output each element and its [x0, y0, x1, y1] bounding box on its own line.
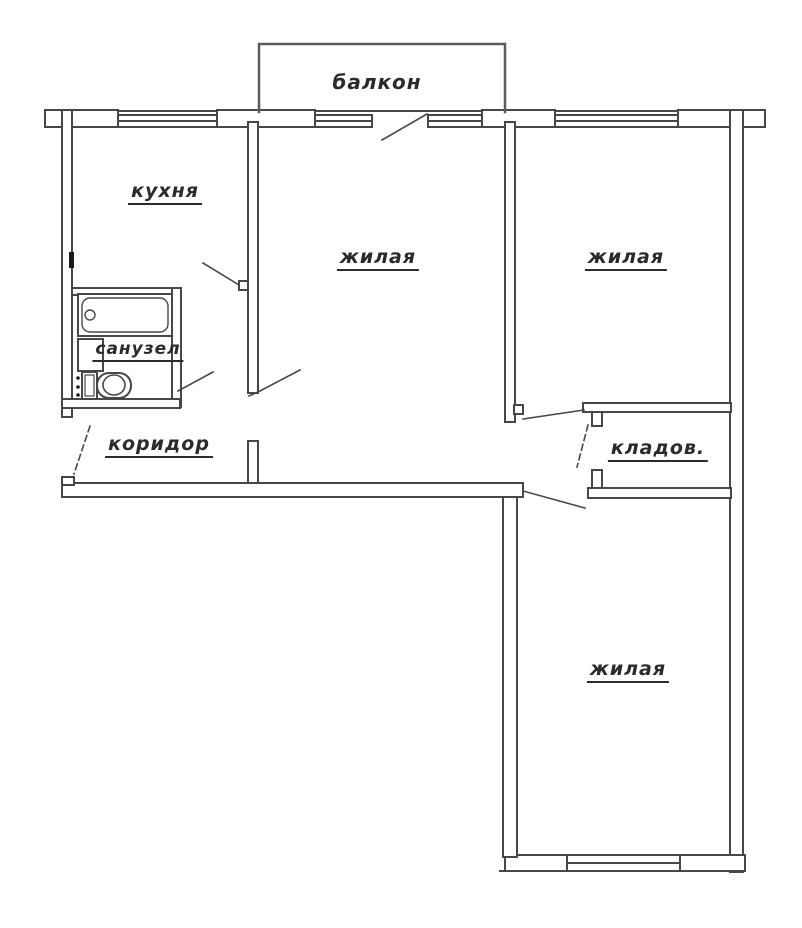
room-label-living-bottom: жилая	[587, 658, 669, 683]
entrance-door-swing	[74, 426, 90, 474]
kitchen-door-swing	[203, 263, 239, 285]
wall-top-pier-right	[678, 110, 765, 127]
wall-storage-door-stub-top	[592, 412, 602, 426]
wall-living-bottom-left	[503, 497, 517, 857]
wall-living-living	[505, 122, 515, 422]
wall-top-pier-mid-right	[482, 110, 555, 127]
floor-plan: балкон кухня жилая жилая санузел коридор…	[0, 0, 802, 928]
wall-kitchen-living	[248, 122, 258, 393]
wall-storage-door-stub-bottom	[592, 470, 602, 489]
window-living-top-right	[428, 115, 482, 127]
living-right-door-swing	[523, 410, 584, 419]
window-living-right	[555, 115, 678, 127]
storage-door-swing	[577, 425, 588, 467]
wall-storage-top	[583, 403, 731, 412]
wall-top-pier-left	[45, 110, 118, 127]
room-label-corridor: коридор	[105, 433, 213, 458]
wall-corridor-left-cap	[62, 477, 74, 485]
floor-plan-drawing	[0, 0, 802, 928]
living-right-door-jamb-marker	[514, 405, 523, 414]
room-label-living-right: жилая	[585, 246, 667, 271]
room-label-balcony: балкон	[332, 70, 421, 94]
room-label-bathroom: санузел	[92, 339, 183, 362]
window-kitchen	[118, 115, 217, 127]
living-bottom-door-swing	[523, 491, 585, 508]
wall-top-pier-mid-left	[217, 110, 315, 127]
wall-stub-corridor-living	[248, 441, 258, 485]
bathroom-door-swing	[178, 372, 213, 391]
bathtub-drain	[85, 310, 95, 320]
wall-storage-bottom	[588, 488, 731, 498]
walls-interior	[62, 122, 731, 857]
wall-bathroom-bottom	[62, 399, 180, 408]
windows-top	[118, 115, 678, 127]
wall-bottom	[500, 855, 745, 871]
room-label-kitchen: кухня	[128, 180, 202, 205]
balcony-door-swing	[382, 114, 427, 140]
room-label-storage: кладов.	[608, 437, 708, 462]
toilet	[76, 372, 131, 399]
wall-corridor-bottom	[62, 483, 523, 497]
wall-bottom-pier-right	[680, 855, 745, 871]
window-living-top-left	[315, 115, 372, 127]
room-label-living-top: жилая	[337, 246, 419, 271]
wall-left-vent-mark	[69, 252, 74, 268]
kitchen-door-jamb-marker	[239, 281, 248, 290]
window-living-bottom	[567, 855, 680, 871]
bathtub	[78, 294, 172, 336]
